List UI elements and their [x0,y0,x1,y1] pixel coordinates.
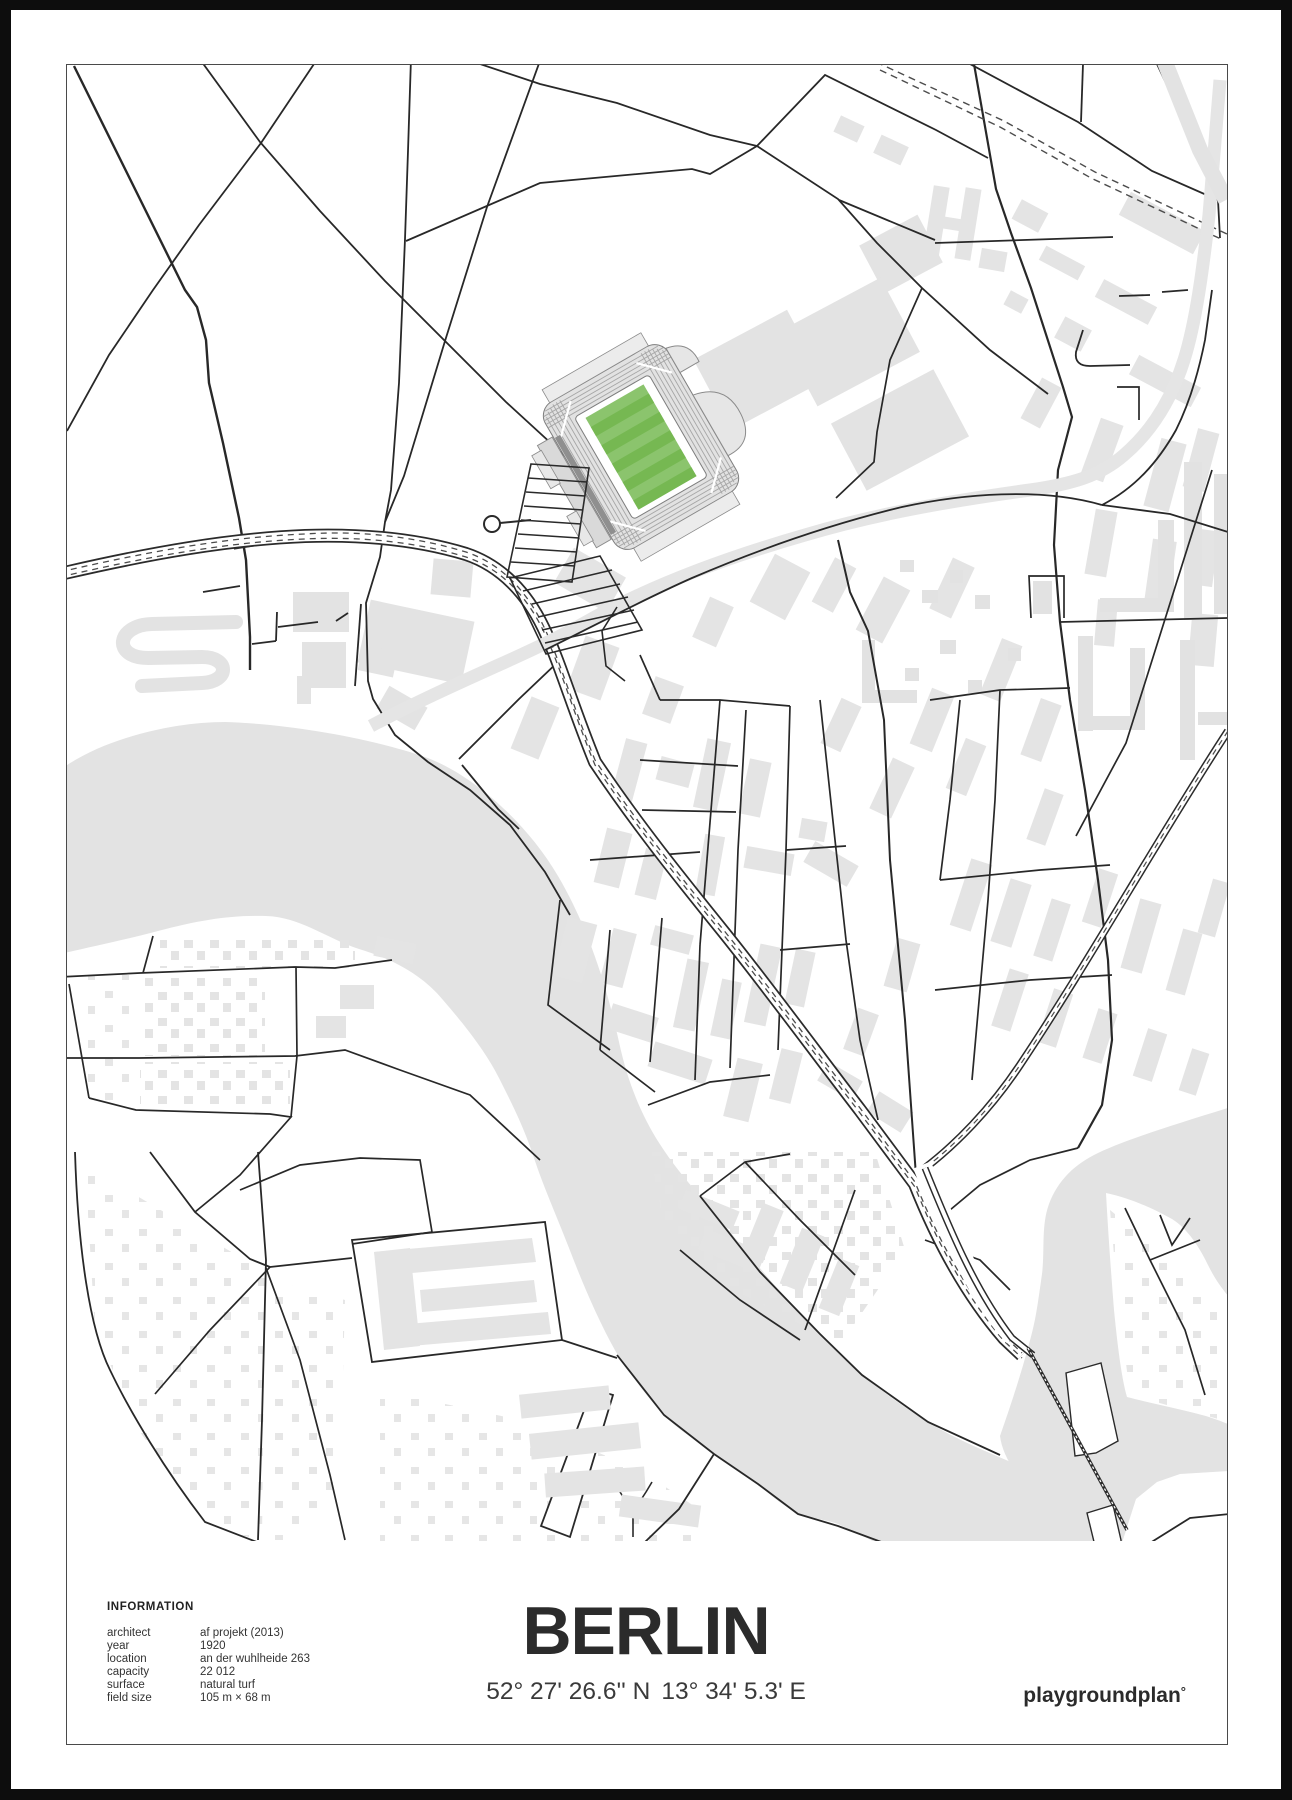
svg-text:1920: 1920 [200,1640,226,1652]
svg-text:surface: surface [107,1679,145,1691]
svg-text:architect: architect [107,1627,151,1639]
svg-text:natural turf: natural turf [200,1679,256,1691]
svg-text:year: year [107,1640,130,1652]
svg-text:field size: field size [107,1692,152,1704]
svg-text:52° 27' 26.6'' N13° 34' 5.3' E: 52° 27' 26.6'' N13° 34' 5.3' E [486,1678,806,1705]
svg-text:BERLIN: BERLIN [522,1593,769,1669]
svg-text:22 012: 22 012 [200,1666,235,1678]
svg-text:capacity: capacity [107,1666,149,1678]
svg-text:105 m × 68 m: 105 m × 68 m [200,1692,271,1704]
svg-text:an der wuhlheide 263: an der wuhlheide 263 [200,1653,310,1665]
svg-text:af projekt (2013): af projekt (2013) [200,1627,284,1639]
svg-text:playgroundplan°: playgroundplan° [1023,1684,1186,1707]
svg-text:location: location [107,1653,147,1665]
svg-text:INFORMATION: INFORMATION [107,1601,194,1613]
